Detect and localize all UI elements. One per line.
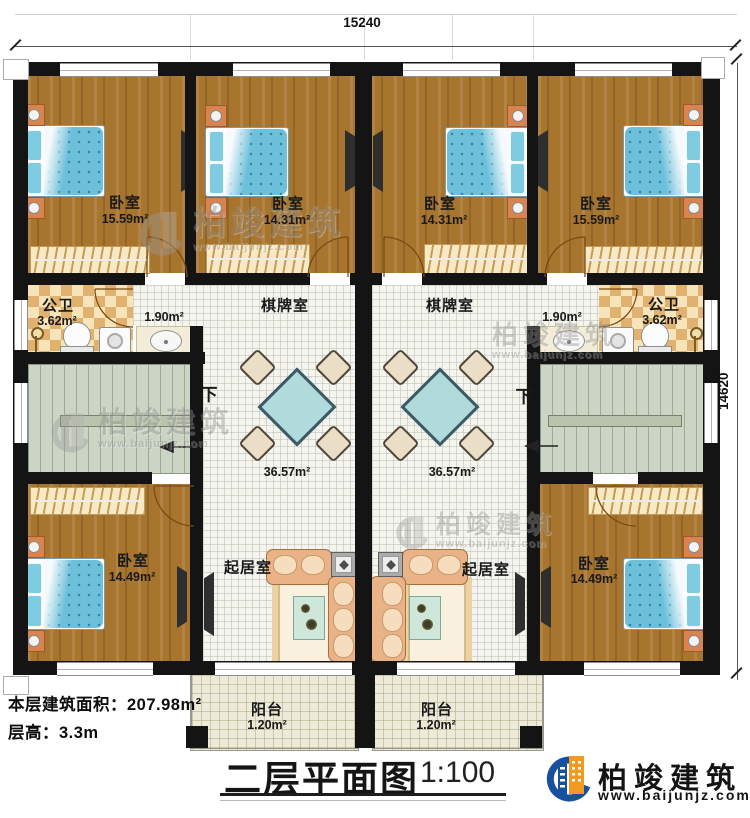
wardrobe — [588, 487, 703, 515]
room-area-game-room-right: 36.57m² — [429, 466, 476, 479]
wardrobe — [206, 244, 310, 274]
nightstand — [683, 104, 705, 126]
dimension-line-top — [15, 46, 737, 47]
wall-bedroom-divider-left — [185, 62, 196, 285]
tv — [538, 130, 548, 192]
dimension-width-label: 15240 — [330, 15, 394, 30]
sheet-fold — [226, 129, 254, 195]
wardrobe — [30, 246, 150, 274]
window — [584, 662, 680, 676]
double-bed — [23, 558, 105, 630]
nightstand — [507, 105, 529, 127]
stair-handrail — [548, 415, 682, 427]
sofa-cushion — [333, 634, 354, 658]
room-label-bedroom-top-left: 卧室 — [109, 196, 141, 211]
sheet-fold — [656, 560, 684, 628]
room-label-balcony-right: 阳台 — [421, 703, 453, 718]
wall-interior — [528, 472, 593, 484]
room-label-bathroom-left: 公卫 — [42, 299, 74, 314]
sheet-fold — [44, 127, 72, 195]
pillow — [686, 595, 701, 626]
tv — [204, 572, 214, 636]
wall-interior — [587, 273, 703, 285]
room-label-bedroom-bottom-left: 卧室 — [117, 554, 149, 569]
wall-party-center — [355, 62, 372, 661]
note-floor-height: 层高：3.3m — [8, 719, 99, 743]
dimension-height-label: 14620 — [716, 356, 731, 426]
window — [233, 63, 330, 77]
wall-interior — [13, 352, 205, 364]
wall-party-balcony-stub — [355, 661, 375, 748]
pillow — [686, 563, 701, 594]
note-floor-area: 本层建筑面积：207.98m² — [8, 691, 202, 715]
double-bed — [623, 558, 705, 630]
room-area-bedroom-top-left2: 14.31m² — [264, 214, 311, 227]
room-label-living-left: 起居室 — [224, 561, 272, 576]
tv — [345, 130, 355, 192]
company-logo-website: www.baijunjz.com — [598, 787, 750, 803]
sofa-cushion — [382, 608, 403, 632]
room-label-bedroom-bottom-right: 卧室 — [578, 557, 610, 572]
washing-machine — [99, 327, 131, 355]
sofa-cushion — [333, 582, 354, 606]
double-bed — [445, 127, 529, 197]
window — [14, 300, 28, 350]
pillow — [27, 130, 42, 161]
tv — [515, 572, 525, 636]
washbasin-sink — [553, 330, 585, 352]
balcony-sliding-door — [215, 662, 352, 676]
sofa-cushion — [382, 634, 403, 658]
towel-stand — [690, 327, 703, 340]
room-area-bedroom-top-right2: 14.31m² — [421, 214, 468, 227]
sofa — [266, 549, 332, 585]
room-label-bedroom-top-right: 卧室 — [580, 197, 612, 212]
wall-interior — [528, 352, 718, 364]
wall-interior — [422, 273, 547, 285]
double-bed — [623, 125, 705, 197]
coffee-table — [409, 596, 441, 640]
room-area-bedroom-top-right: 15.59m² — [573, 214, 620, 227]
room-label-bathroom-right: 公卫 — [648, 298, 680, 313]
floor-balcony-right — [372, 675, 544, 751]
room-label-balcony-left: 阳台 — [251, 703, 283, 718]
room-label-bedroom-top-right2: 卧室 — [424, 197, 456, 212]
pillow — [510, 163, 525, 194]
room-label-game-room-right: 棋牌室 — [426, 299, 474, 314]
stairs-down-label-left: 下 — [201, 387, 218, 404]
pillow — [27, 162, 42, 193]
pillow — [209, 163, 224, 194]
room-area-balcony-right: 1.20m² — [416, 719, 456, 732]
room-area-washbasin-left: 1.90m² — [144, 311, 184, 324]
stair-handrail — [60, 415, 194, 427]
sofa-cushion — [273, 555, 297, 575]
window — [575, 63, 672, 77]
sofa-cushion — [437, 555, 461, 575]
room-area-balcony-left: 1.20m² — [247, 719, 287, 732]
room-label-living-right: 起居室 — [462, 563, 510, 578]
wall-interior — [13, 472, 152, 484]
wardrobe — [584, 246, 704, 274]
room-area-bathroom-right: 3.62m² — [642, 314, 682, 327]
nightstand — [683, 197, 705, 219]
room-label-game-room-left: 棋牌室 — [261, 299, 309, 314]
construction-line — [190, 14, 191, 60]
side-table — [378, 552, 403, 577]
wardrobe — [424, 244, 528, 274]
nightstand — [205, 105, 227, 127]
balcony-pillar — [520, 726, 542, 748]
balcony-sliding-door — [397, 662, 515, 676]
room-area-bathroom-left: 3.62m² — [37, 315, 77, 328]
room-area-bedroom-bottom-left: 14.49m² — [109, 571, 156, 584]
tv — [373, 130, 383, 192]
side-table — [331, 552, 356, 577]
sheet-fold — [656, 127, 684, 195]
sheet-fold — [44, 560, 72, 628]
room-area-game-room-left: 36.57m² — [264, 466, 311, 479]
window — [403, 63, 500, 77]
corner-mark — [3, 59, 29, 80]
wall-exterior-left — [13, 62, 28, 675]
coffee-table — [293, 596, 325, 640]
balcony-pillar — [186, 726, 208, 748]
pillow — [209, 131, 224, 162]
room-label-bedroom-top-left2: 卧室 — [272, 197, 304, 212]
double-bed — [23, 125, 105, 197]
wall-bedroom-divider-right — [527, 62, 538, 285]
pillow — [27, 595, 42, 626]
wall-interior — [192, 472, 203, 484]
room-area-bedroom-bottom-right: 14.49m² — [571, 573, 618, 586]
tv — [177, 566, 187, 628]
wall-interior — [372, 273, 382, 285]
washbasin-sink — [150, 330, 182, 352]
drawing-scale: 1:100 — [420, 756, 495, 790]
pillow — [686, 130, 701, 161]
dimension-tick — [729, 39, 741, 51]
room-area-washbasin-right: 1.90m² — [542, 311, 582, 324]
washing-machine — [602, 327, 634, 355]
sheet-fold — [480, 129, 508, 195]
dimension-line-right — [737, 63, 738, 680]
sofa-cushion — [409, 555, 433, 575]
company-logo-icon — [541, 750, 593, 808]
nightstand — [205, 197, 227, 219]
tv — [541, 566, 551, 628]
sofa — [370, 576, 406, 662]
wardrobe — [30, 487, 145, 515]
title-underline — [220, 793, 506, 796]
pillow — [510, 131, 525, 162]
window — [704, 300, 718, 350]
construction-line — [452, 14, 453, 60]
wall-interior — [190, 326, 203, 661]
wall-interior — [28, 273, 145, 285]
window — [57, 662, 153, 676]
sofa-cushion — [382, 582, 403, 606]
window — [60, 63, 158, 77]
double-bed — [205, 127, 289, 197]
stairs-down-label-right: 下 — [516, 389, 533, 406]
wall-interior — [185, 273, 310, 285]
wall-interior — [527, 326, 540, 661]
nightstand — [507, 197, 529, 219]
dimension-tick — [9, 39, 21, 51]
nightstand — [683, 536, 705, 558]
wall-interior — [350, 273, 355, 285]
towel-stand — [31, 327, 44, 340]
title-underline-thin — [220, 800, 506, 801]
sofa-cushion — [301, 555, 325, 575]
construction-line — [533, 14, 534, 60]
sofa-cushion — [333, 608, 354, 632]
nightstand — [683, 630, 705, 652]
floor-plan-canvas: 15240 14620 — [0, 0, 750, 818]
wall-interior — [638, 472, 718, 484]
pillow — [686, 162, 701, 193]
corner-mark — [701, 57, 725, 79]
window — [14, 383, 28, 443]
pillow — [27, 563, 42, 594]
sofa — [402, 549, 468, 585]
room-area-bedroom-top-left: 15.59m² — [102, 213, 149, 226]
